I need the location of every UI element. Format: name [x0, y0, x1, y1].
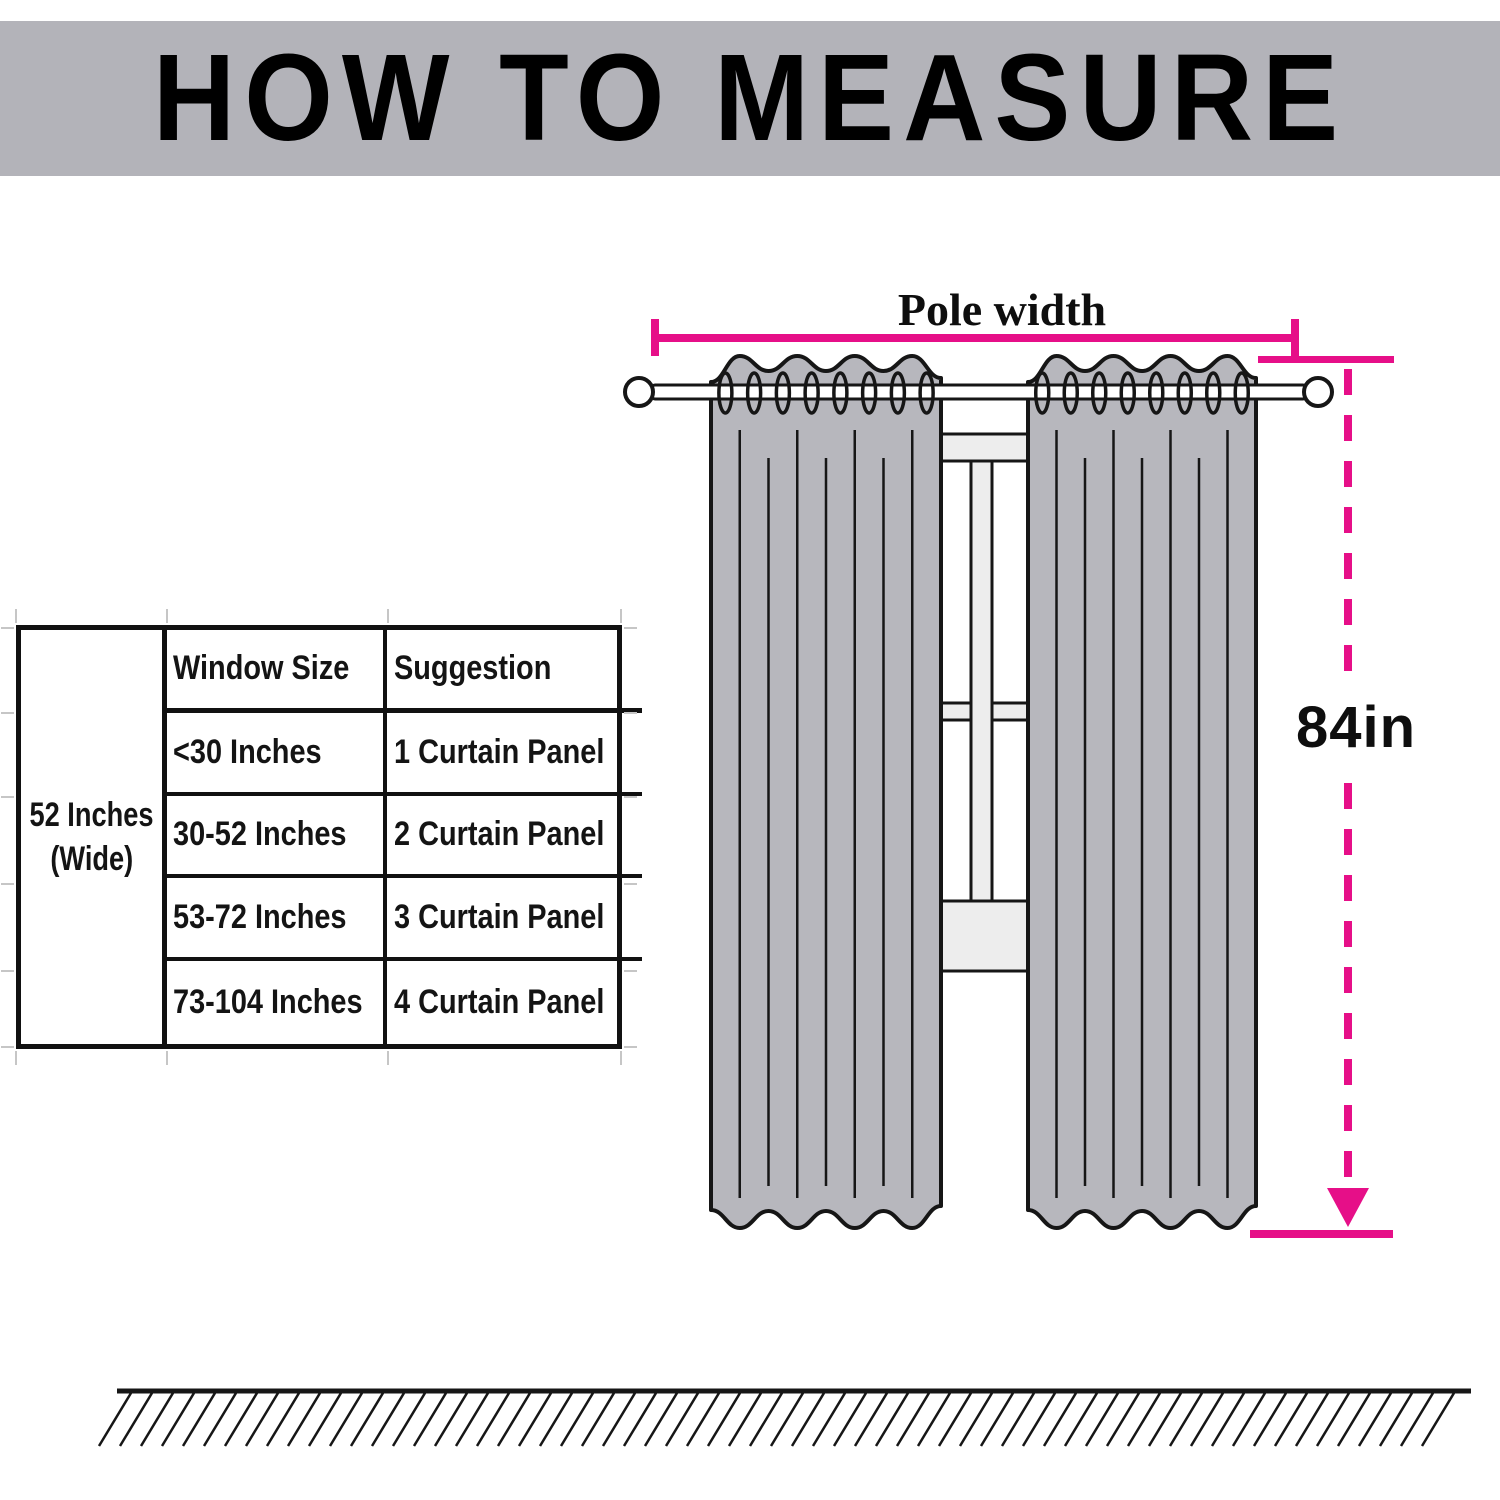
- page-title: HOW TO MEASURE: [153, 28, 1347, 169]
- table-cell-panel-width: 52 Inches (Wide): [21, 630, 167, 1044]
- window-crossbar-right: [992, 703, 1031, 720]
- table-cell-window-size-2: 30-52 Inches: [167, 796, 383, 879]
- window-frame: [935, 399, 1031, 1171]
- pole-width-end-tick-right: [1291, 319, 1299, 356]
- table-cell-suggestion-1: 1 Curtain Panel: [383, 713, 642, 796]
- gridline-tick: [624, 883, 637, 885]
- gridline-tick: [624, 712, 637, 714]
- gridline-tick: [620, 609, 622, 623]
- gridline-tick: [624, 796, 637, 798]
- table-cell-suggestion-2: 2 Curtain Panel: [383, 796, 642, 879]
- height-measure: [1250, 356, 1394, 1238]
- gridline-tick: [620, 1051, 622, 1065]
- rod-finial-left: [625, 378, 653, 406]
- title-banner: HOW TO MEASURE: [0, 21, 1500, 176]
- gridline-tick: [15, 609, 17, 623]
- pole-width-end-tick-left: [651, 319, 659, 356]
- gridline-tick: [166, 609, 168, 623]
- window-top-rail: [935, 434, 1031, 461]
- gridline-tick: [387, 1051, 389, 1065]
- rod-finial-right: [1304, 378, 1332, 406]
- table-cell-suggestion-3: 3 Curtain Panel: [383, 878, 642, 961]
- panel-width-line1: 52 Inches: [30, 793, 154, 837]
- gridline-tick: [15, 1051, 17, 1065]
- height-arrowhead: [1327, 1188, 1369, 1227]
- size-chart-grid: 52 Inches (Wide) Window Size Suggestion …: [21, 630, 617, 1044]
- table-cell-window-size-4: 73-104 Inches: [167, 961, 383, 1044]
- table-header-suggestion: Suggestion: [383, 630, 642, 713]
- table-cell-window-size-1: <30 Inches: [167, 713, 383, 796]
- gridline-tick: [624, 1046, 637, 1048]
- gridline-tick: [624, 627, 637, 629]
- window-bottom-rail: [935, 901, 1031, 971]
- gridline-tick: [1, 712, 14, 714]
- size-chart-table: 52 Inches (Wide) Window Size Suggestion …: [16, 625, 622, 1049]
- gridline-tick: [1, 1046, 14, 1048]
- pole-width-label: Pole width: [822, 283, 1182, 336]
- gridline-tick: [624, 970, 637, 972]
- gridline-tick: [1, 970, 14, 972]
- panel-width-line2: (Wide): [50, 837, 133, 881]
- gridline-tick: [1, 883, 14, 885]
- how-to-measure-infographic: HOW TO MEASURE Pole width 84in 52 Inches…: [0, 0, 1500, 1500]
- window-mullion: [971, 461, 992, 904]
- gridline-tick: [1, 627, 14, 629]
- table-header-window-size: Window Size: [167, 630, 383, 713]
- height-top-cap: [1258, 356, 1394, 363]
- gridline-tick: [166, 1051, 168, 1065]
- gridline-tick: [1, 796, 14, 798]
- ground: [99, 1391, 1471, 1446]
- height-bottom-cap: [1250, 1230, 1393, 1238]
- table-cell-suggestion-4: 4 Curtain Panel: [383, 961, 642, 1044]
- gridline-tick: [387, 609, 389, 623]
- table-cell-window-size-3: 53-72 Inches: [167, 878, 383, 961]
- curtain-height-label: 84in: [1284, 690, 1428, 765]
